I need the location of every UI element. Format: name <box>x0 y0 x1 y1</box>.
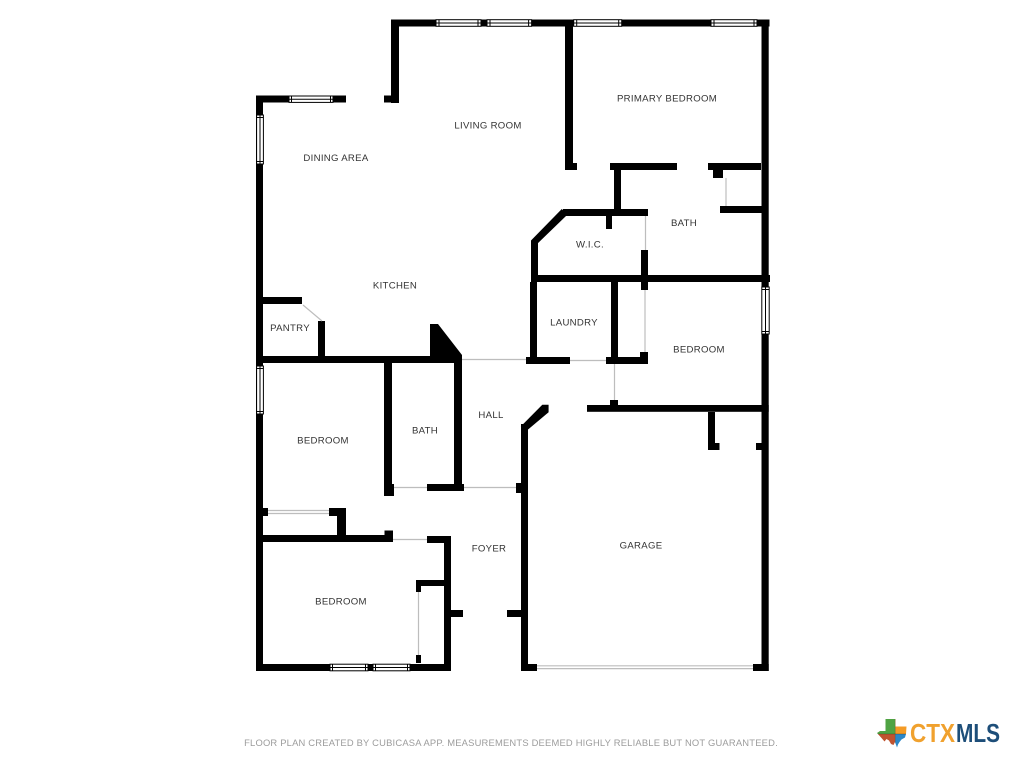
svg-text:DINING AREA: DINING AREA <box>303 153 368 164</box>
svg-text:FOYER: FOYER <box>472 544 507 555</box>
svg-text:BEDROOM: BEDROOM <box>673 345 725 356</box>
svg-text:BEDROOM: BEDROOM <box>297 436 349 447</box>
svg-text:FLOOR PLAN CREATED BY CUBICASA: FLOOR PLAN CREATED BY CUBICASA APP. MEAS… <box>244 737 778 748</box>
svg-text:BATH: BATH <box>412 426 438 437</box>
svg-text:GARAGE: GARAGE <box>620 541 663 552</box>
svg-text:CTX: CTX <box>910 718 956 748</box>
svg-text:LIVING ROOM: LIVING ROOM <box>454 121 521 132</box>
svg-text:PANTRY: PANTRY <box>270 323 310 334</box>
svg-text:W.I.C.: W.I.C. <box>576 240 604 251</box>
svg-text:HALL: HALL <box>478 410 504 421</box>
svg-text:BEDROOM: BEDROOM <box>315 597 367 608</box>
svg-text:LAUNDRY: LAUNDRY <box>550 318 598 329</box>
svg-text:KITCHEN: KITCHEN <box>373 281 417 292</box>
svg-text:BATH: BATH <box>671 218 697 229</box>
svg-text:MLS: MLS <box>956 718 1000 748</box>
svg-text:PRIMARY BEDROOM: PRIMARY BEDROOM <box>617 94 717 105</box>
